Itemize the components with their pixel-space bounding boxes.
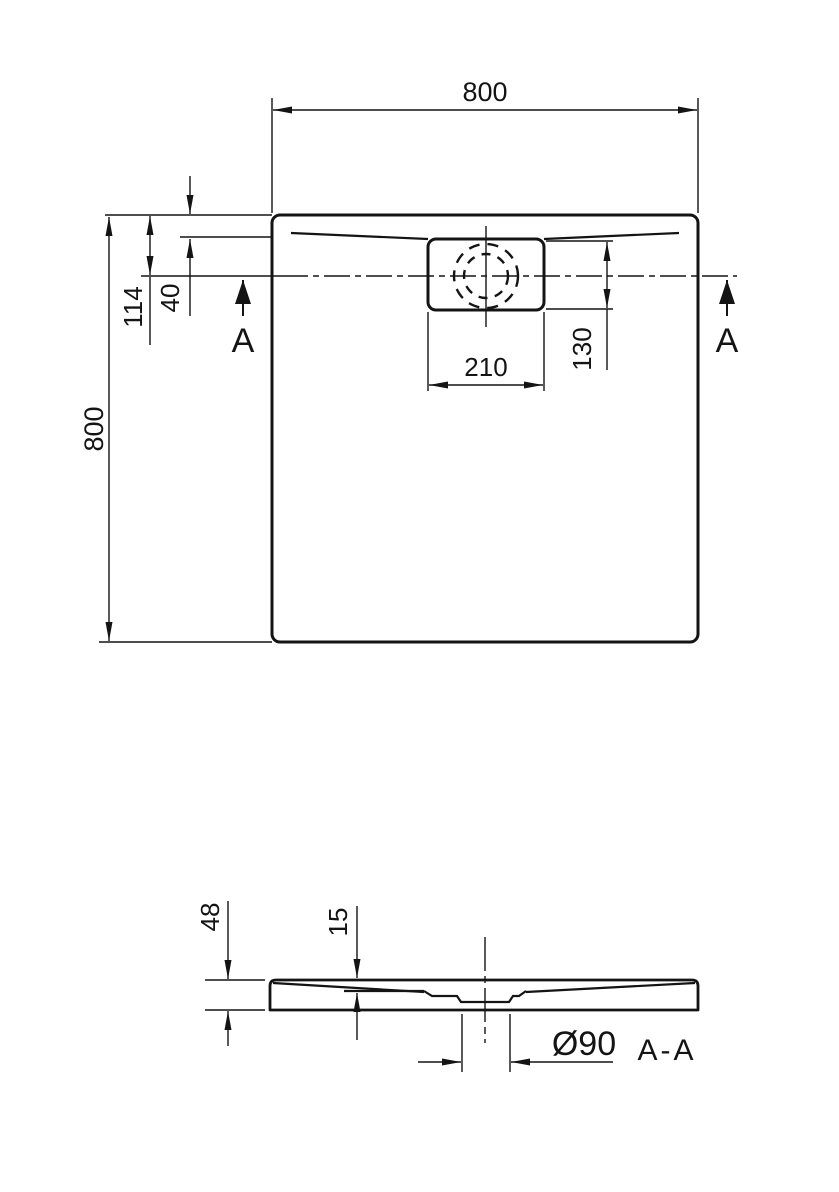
dim-label-40: 40 xyxy=(155,284,185,313)
section-view: 48 15 Ø90 A-A xyxy=(195,901,698,1072)
dim-label-114: 114 xyxy=(118,286,148,327)
section-drain-recess xyxy=(424,991,526,1002)
section-arrow-label-left: A xyxy=(232,322,255,360)
section-profile-outline xyxy=(270,980,698,1010)
plan-view: 800 800 114 40 210 130 A A xyxy=(79,77,739,642)
section-arrow-label-right: A xyxy=(716,322,739,360)
section-slope-right xyxy=(526,983,695,992)
tray-outline xyxy=(272,215,698,642)
dim-label-drain-diameter: Ø90 xyxy=(552,1025,616,1063)
drawing-svg: 800 800 114 40 210 130 A A xyxy=(0,0,839,1192)
dim-label-height-left: 800 xyxy=(79,406,109,451)
technical-drawing-canvas: 800 800 114 40 210 130 A A xyxy=(0,0,839,1192)
dim-label-15: 15 xyxy=(323,908,353,937)
dim-label-48: 48 xyxy=(195,903,225,932)
rim-slope-line-left xyxy=(291,233,428,239)
rim-slope-line-right xyxy=(544,233,679,239)
dim-label-130: 130 xyxy=(567,327,597,370)
dim-label-210: 210 xyxy=(464,352,507,382)
dim-label-width-top: 800 xyxy=(462,77,507,107)
section-title: A-A xyxy=(637,1034,696,1067)
